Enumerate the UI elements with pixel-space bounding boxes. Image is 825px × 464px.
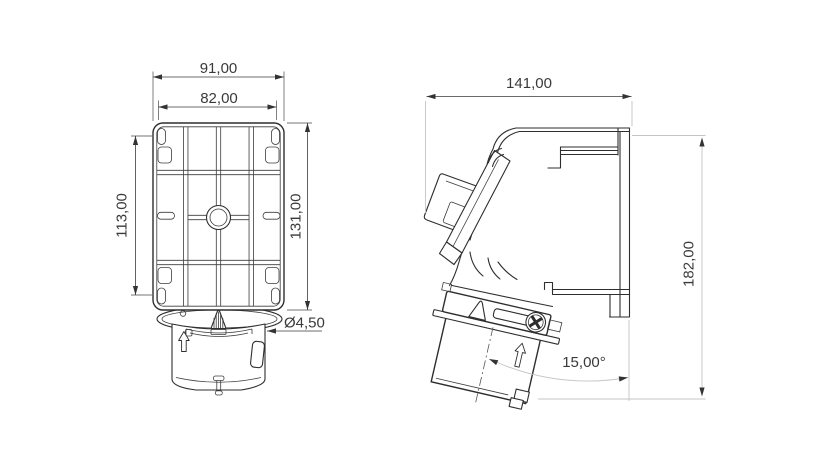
dim-label-height: 182,00: [681, 241, 698, 287]
technical-drawing: 91,00 82,00 113,00 131,00: [0, 0, 825, 464]
dim-label-inner-height: 113,00: [114, 193, 131, 238]
dim-outer-height: 131,00: [288, 123, 311, 310]
side-socket-group: [415, 282, 566, 421]
dim-depth: 141,00: [427, 75, 632, 99]
front-plate: [153, 123, 284, 310]
dim-label-angle: 15,00°: [562, 354, 606, 371]
dim-label-outer-width: 91,00: [200, 60, 238, 77]
dim-outer-width: 91,00: [153, 60, 284, 80]
dim-inner-width: 82,00: [159, 90, 277, 110]
dim-label-inner-width: 82,00: [200, 90, 238, 107]
dim-inner-height: 113,00: [114, 136, 139, 295]
front-side-tab: [250, 341, 265, 368]
dim-height: 182,00: [681, 138, 705, 397]
dim-label-outer-height: 131,00: [288, 194, 305, 240]
dim-label-hole-diameter: Ø4,50: [284, 315, 325, 332]
side-view: 141,00 182,00 15,00°: [415, 75, 705, 420]
drawing-canvas: 91,00 82,00 113,00 131,00: [0, 0, 825, 464]
dim-label-depth: 141,00: [506, 75, 552, 92]
front-view: 91,00 82,00 113,00 131,00: [114, 60, 325, 395]
side-lid: [424, 149, 510, 265]
